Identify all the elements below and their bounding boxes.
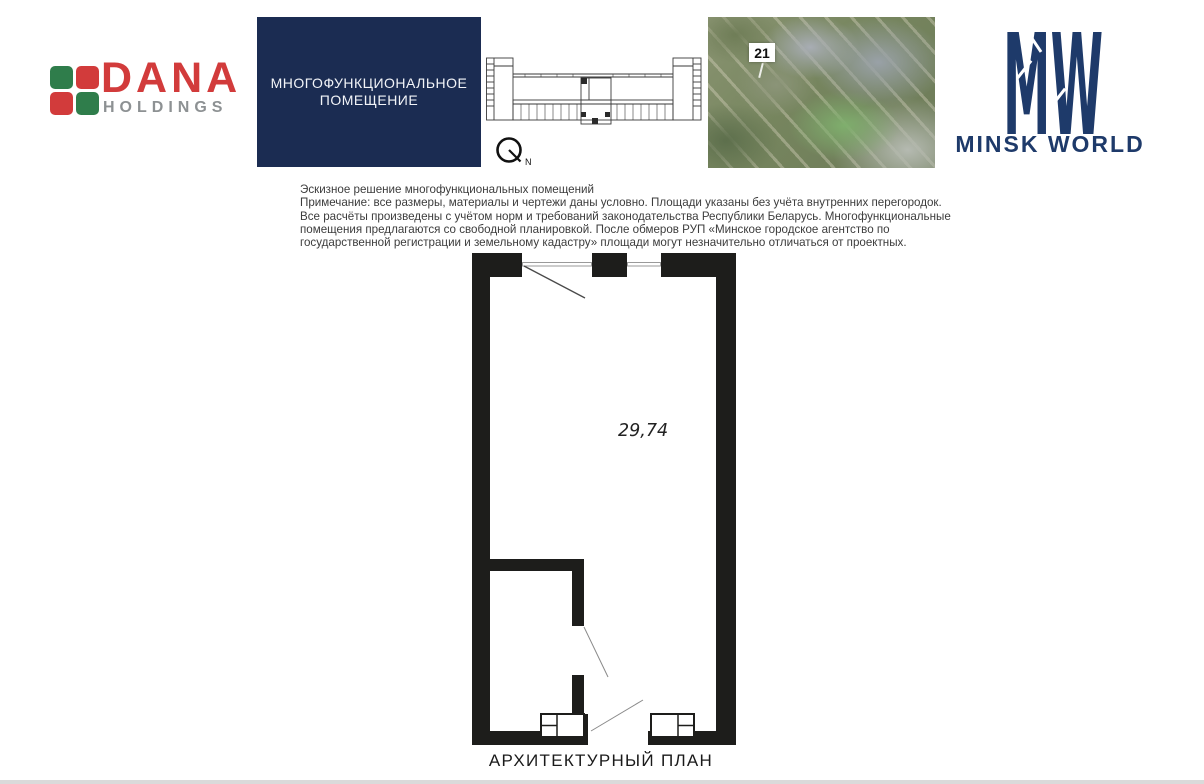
minsk-world-monogram-icon: M W (965, 26, 1140, 141)
monogram-letter-m: M (1003, 26, 1050, 141)
dana-square-green-br (76, 92, 99, 115)
dana-square-red-tr (76, 66, 99, 89)
window-lines (522, 263, 661, 267)
dana-logo-icon (50, 66, 100, 116)
dana-square-green-tl (50, 66, 73, 89)
floor-plan-walls (472, 253, 736, 745)
building-key-plan-drawing (485, 54, 713, 130)
window-opening-line (524, 266, 585, 298)
disclaimer-line: Эскизное решение многофункциональных пом… (300, 183, 940, 196)
plan-caption: АРХИТЕКТУРНЫЙ ПЛАН (455, 751, 747, 771)
floor-plan-drawing: 29,74 (455, 248, 747, 752)
unit-type-banner: МНОГОФУНКЦИОНАЛЬНОЕ ПОМЕЩЕНИЕ (257, 17, 481, 167)
dana-logo-title: DANA (101, 57, 241, 100)
entrance-door-swing (591, 700, 643, 731)
shaft-boxes (541, 714, 694, 737)
dana-logo-subtitle: HOLDINGS (103, 100, 227, 116)
aerial-photo: 21 (708, 17, 935, 168)
bathroom-door-swing (584, 627, 608, 677)
unit-type-line1: МНОГОФУНКЦИОНАЛЬНОЕ (271, 75, 468, 93)
monogram-letter-w: W (1051, 26, 1104, 141)
minsk-world-wordmark: MINSK WORLD (950, 133, 1150, 156)
compass-north-label: N (525, 157, 532, 167)
disclaimer-text: Эскизное решение многофункциональных пом… (300, 183, 940, 249)
compass-icon: N (494, 134, 542, 176)
unit-type-line2: ПОМЕЩЕНИЕ (320, 92, 418, 110)
disclaimer-line: помещения предлагаются со свободной план… (300, 223, 940, 236)
building-number-badge: 21 (749, 43, 775, 62)
disclaimer-line: Все расчёты произведены с учётом норм и … (300, 210, 940, 223)
dana-square-red-bl (50, 92, 73, 115)
disclaimer-line: Примечание: все размеры, материалы и чер… (300, 196, 940, 209)
bottom-edge-strip (0, 780, 1204, 784)
area-label: 29,74 (618, 421, 668, 441)
building-number-pointer (758, 63, 764, 78)
